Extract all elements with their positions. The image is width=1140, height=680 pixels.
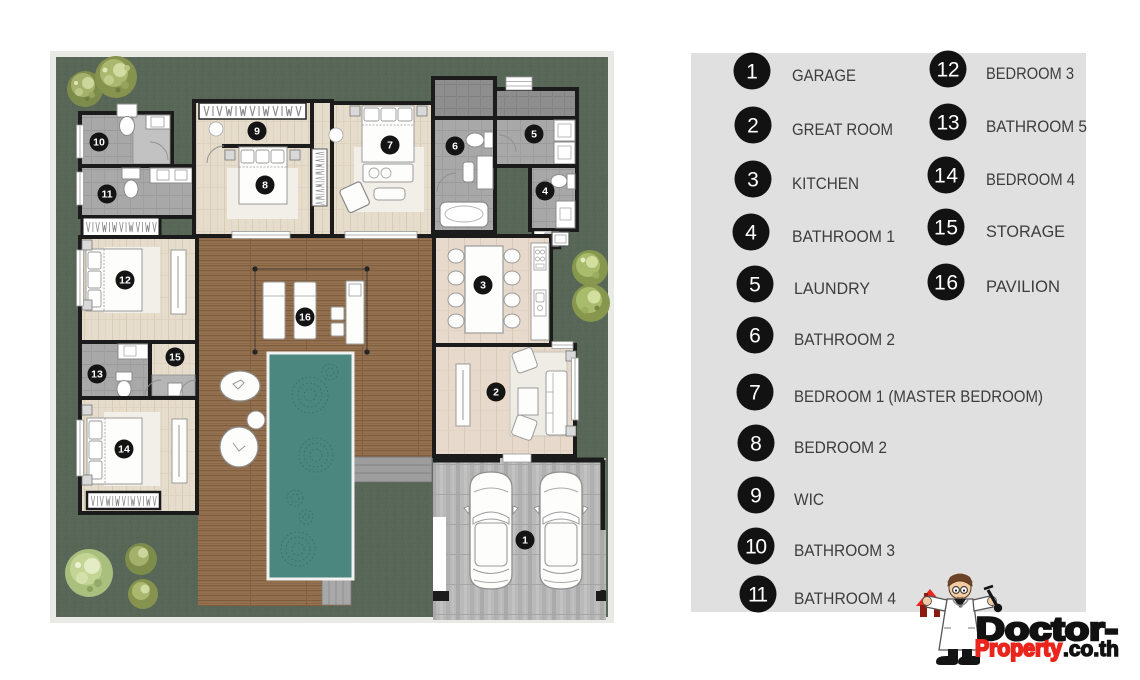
svg-text:7: 7: [387, 140, 393, 152]
svg-text:1: 1: [522, 535, 528, 547]
svg-text:10: 10: [745, 536, 767, 559]
svg-text:4: 4: [542, 186, 548, 198]
svg-text:GREAT ROOM: GREAT ROOM: [792, 121, 893, 139]
svg-text:6: 6: [749, 325, 761, 348]
svg-text:2: 2: [747, 115, 759, 138]
svg-text:12: 12: [937, 59, 960, 82]
svg-text:3: 3: [480, 280, 486, 292]
svg-text:PAVILION: PAVILION: [986, 278, 1060, 296]
svg-text:5: 5: [531, 129, 537, 141]
svg-text:1: 1: [746, 61, 758, 84]
svg-text:2: 2: [493, 387, 499, 399]
svg-text:10: 10: [93, 137, 105, 149]
svg-text:3: 3: [747, 169, 759, 192]
svg-text:BATHROOM 5: BATHROOM 5: [986, 118, 1087, 136]
svg-text:13: 13: [91, 369, 103, 381]
svg-text:13: 13: [937, 112, 960, 135]
svg-text:BEDROOM 4: BEDROOM 4: [986, 171, 1075, 189]
svg-text:9: 9: [254, 126, 260, 138]
svg-text:5: 5: [749, 274, 761, 297]
svg-text:11: 11: [101, 189, 112, 201]
svg-text:LAUNDRY: LAUNDRY: [794, 280, 870, 298]
svg-text:BATHROOM 3: BATHROOM 3: [794, 542, 895, 560]
svg-text:9: 9: [750, 485, 762, 508]
svg-text:KITCHEN: KITCHEN: [792, 175, 859, 193]
svg-text:15: 15: [934, 217, 958, 240]
svg-text:GARAGE: GARAGE: [792, 67, 856, 85]
svg-text:7: 7: [749, 382, 761, 405]
svg-text:BATHROOM 2: BATHROOM 2: [794, 331, 895, 349]
svg-text:Property: Property: [975, 635, 1062, 661]
svg-text:16: 16: [299, 312, 311, 324]
svg-text:14: 14: [934, 165, 958, 188]
svg-text:8: 8: [262, 180, 268, 192]
svg-text:4: 4: [745, 222, 757, 245]
svg-text:16: 16: [934, 272, 958, 295]
svg-text:11: 11: [748, 584, 768, 607]
svg-text:12: 12: [119, 275, 131, 287]
svg-text:14: 14: [118, 444, 130, 456]
svg-text:WIC: WIC: [794, 491, 824, 509]
svg-text:15: 15: [169, 352, 181, 364]
svg-text:.co.th: .co.th: [1063, 638, 1119, 661]
svg-text:6: 6: [452, 141, 458, 153]
svg-text:BATHROOM 1: BATHROOM 1: [792, 228, 895, 246]
svg-text:BATHROOM 4: BATHROOM 4: [794, 590, 896, 608]
svg-text:8: 8: [750, 433, 762, 456]
svg-text:BEDROOM 3: BEDROOM 3: [986, 65, 1074, 83]
svg-text:STORAGE: STORAGE: [986, 223, 1065, 241]
svg-text:BEDROOM 2: BEDROOM 2: [794, 439, 887, 457]
svg-text:BEDROOM 1 (MASTER BEDROOM): BEDROOM 1 (MASTER BEDROOM): [794, 388, 1043, 406]
